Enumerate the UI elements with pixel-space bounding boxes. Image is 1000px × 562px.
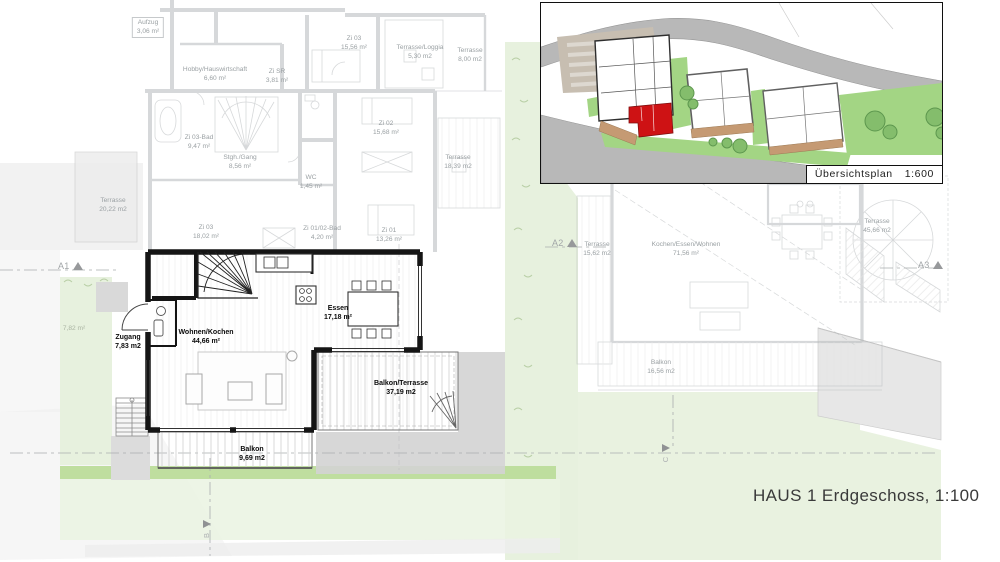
triangle-right-icon: [662, 444, 670, 452]
inset-caption-text: Übersichtsplan: [815, 166, 893, 183]
overview-drawing: [541, 3, 942, 183]
room-label-hobby: Hobby/Hauswirtschaft6,60 m²: [183, 66, 247, 83]
section-marker-c: C: [662, 444, 670, 464]
inset-highlighted-unit: [629, 103, 673, 137]
room-label-terrasse-2022: Terrasse20,22 m2: [99, 197, 127, 214]
triangle-up-icon: [567, 239, 577, 247]
room-label-aufzug: Aufzug3,06 m²: [132, 17, 164, 38]
section-marker-b: B: [203, 520, 211, 540]
room-label-stgh-gang: Stgh./Gang8,56 m²: [223, 154, 256, 171]
room-label-balkon-1656: Balkon16,56 m2: [647, 359, 675, 376]
inset-scale-text: 1:600: [905, 166, 934, 183]
overview-inset: Übersichtsplan 1:600: [540, 2, 943, 184]
room-label-zi03-eg: Zi 0318,02 m²: [193, 224, 219, 241]
room-label-zugang: Zugang7,83 m2: [115, 333, 141, 351]
room-label-zi-sr: Zi SR3,81 m²: [266, 68, 288, 85]
room-label-kochen-essen-wohnen: Kochen/Essen/Wohnen71,56 m²: [652, 241, 721, 258]
triangle-up-icon: [933, 261, 943, 269]
inset-caption: Übersichtsplan 1:600: [806, 165, 942, 183]
room-label-zi03-og: Zi 0315,56 m²: [341, 35, 367, 52]
room-label-balkon-terrasse: Balkon/Terrasse37,19 m2: [374, 379, 428, 397]
section-marker-a1: A1: [58, 261, 83, 271]
room-label-zi0102-bad: Zi 01/02-Bad4,20 m²: [303, 225, 341, 242]
room-label-terrasse-1562: Terrasse15,62 m2: [583, 241, 611, 258]
floor-plan-sheet: Aufzug3,06 m² Hobby/Hauswirtschaft6,60 m…: [0, 0, 1000, 562]
room-label-essen: Essen17,18 m²: [324, 304, 352, 322]
room-label-terrasse-1839: Terrasse18,39 m2: [444, 154, 472, 171]
room-label-zi01: Zi 0113,26 m²: [376, 227, 402, 244]
room-label-balkon-969: Balkon9,69 m2: [239, 445, 265, 463]
triangle-right-icon: [203, 520, 211, 528]
inset-haus3: [763, 83, 843, 155]
room-label-wc: WC1,45 m²: [300, 174, 322, 191]
room-label-garden-782: 7,82 m²: [63, 325, 85, 334]
triangle-up-icon: [73, 262, 83, 270]
room-label-zi02: Zi 0215,68 m²: [373, 120, 399, 137]
sheet-title: HAUS 1 Erdgeschoss, 1:100: [753, 486, 979, 506]
inset-haus1: [595, 35, 673, 145]
room-label-terrasse-800: Terrasse8,00 m2: [457, 47, 482, 64]
room-label-zi03-bad: Zi 03-Bad9,47 m²: [185, 134, 214, 151]
section-marker-a3: A3: [918, 260, 943, 270]
room-label-terrasse-4566: Terrasse45,66 m2: [863, 218, 891, 235]
section-marker-a2: A2: [552, 238, 577, 248]
room-label-terrasse-loggia: Terrasse/Loggia5,30 m2: [397, 44, 444, 61]
ghost-plan-upper: [145, 0, 502, 252]
room-label-wohnen-kochen: Wohnen/Kochen44,66 m²: [178, 328, 233, 346]
